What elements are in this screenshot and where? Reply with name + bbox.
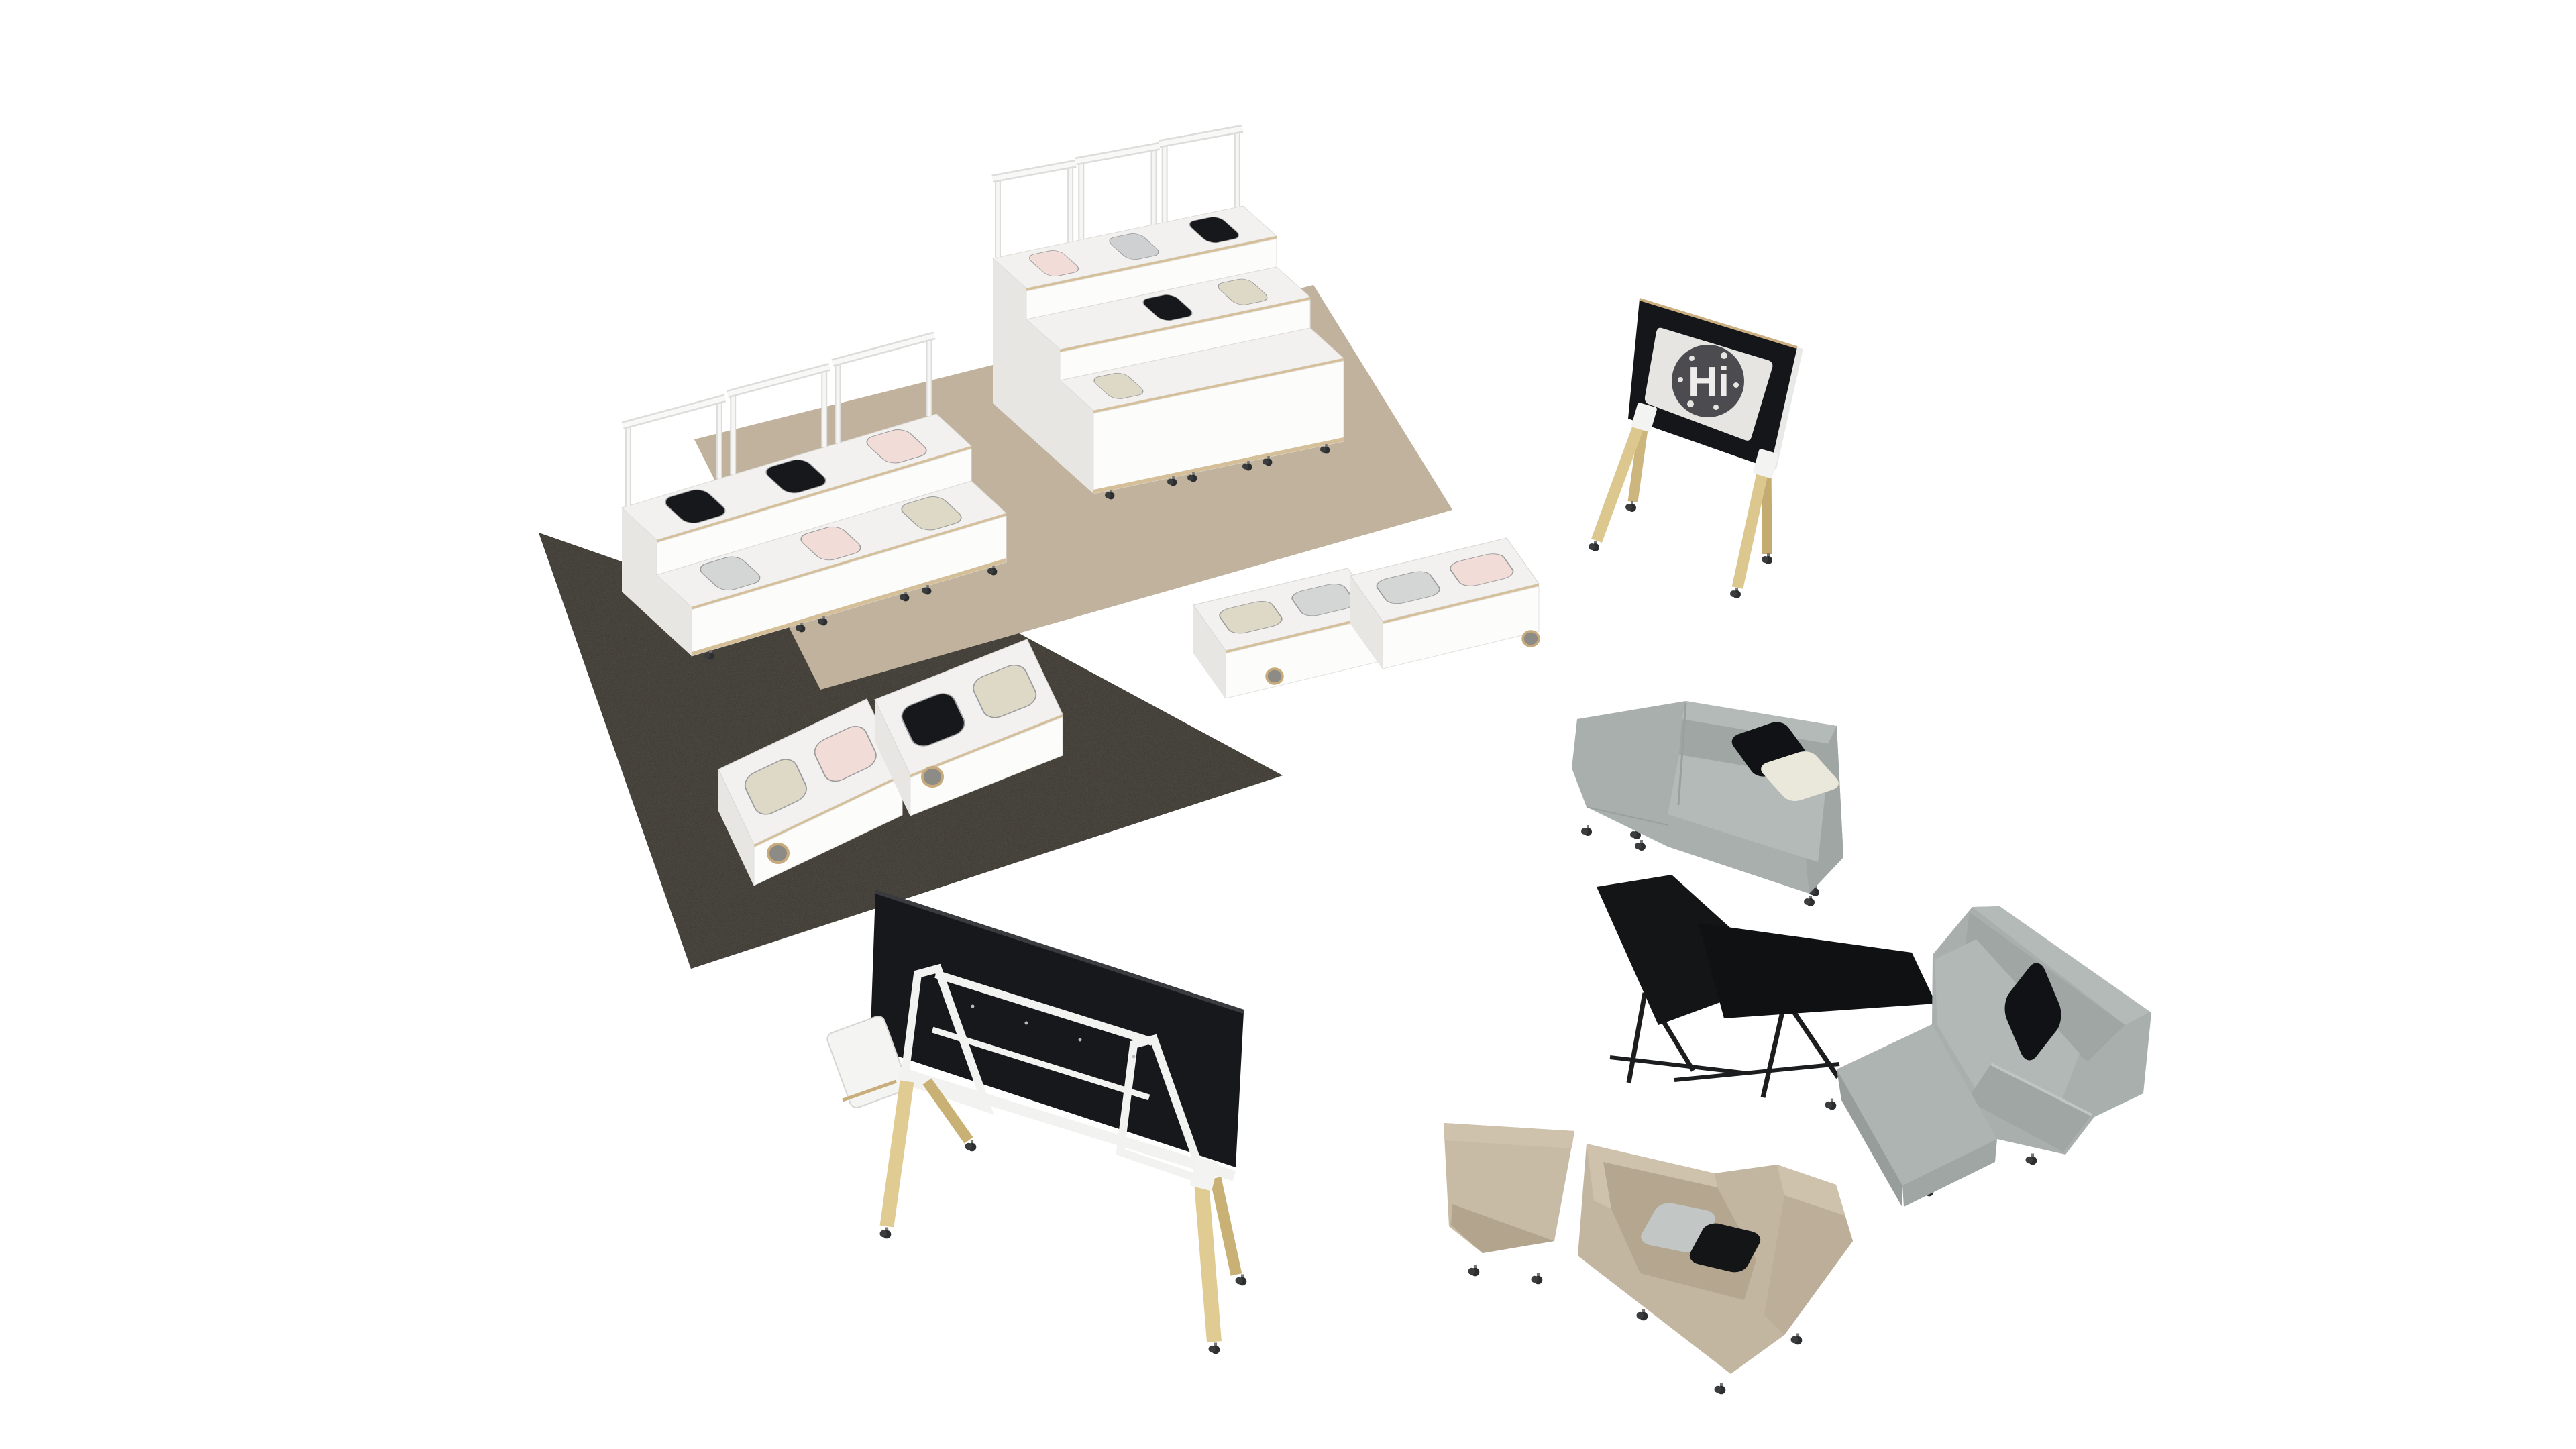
svg-text:Hi: Hi xyxy=(1688,359,1729,405)
